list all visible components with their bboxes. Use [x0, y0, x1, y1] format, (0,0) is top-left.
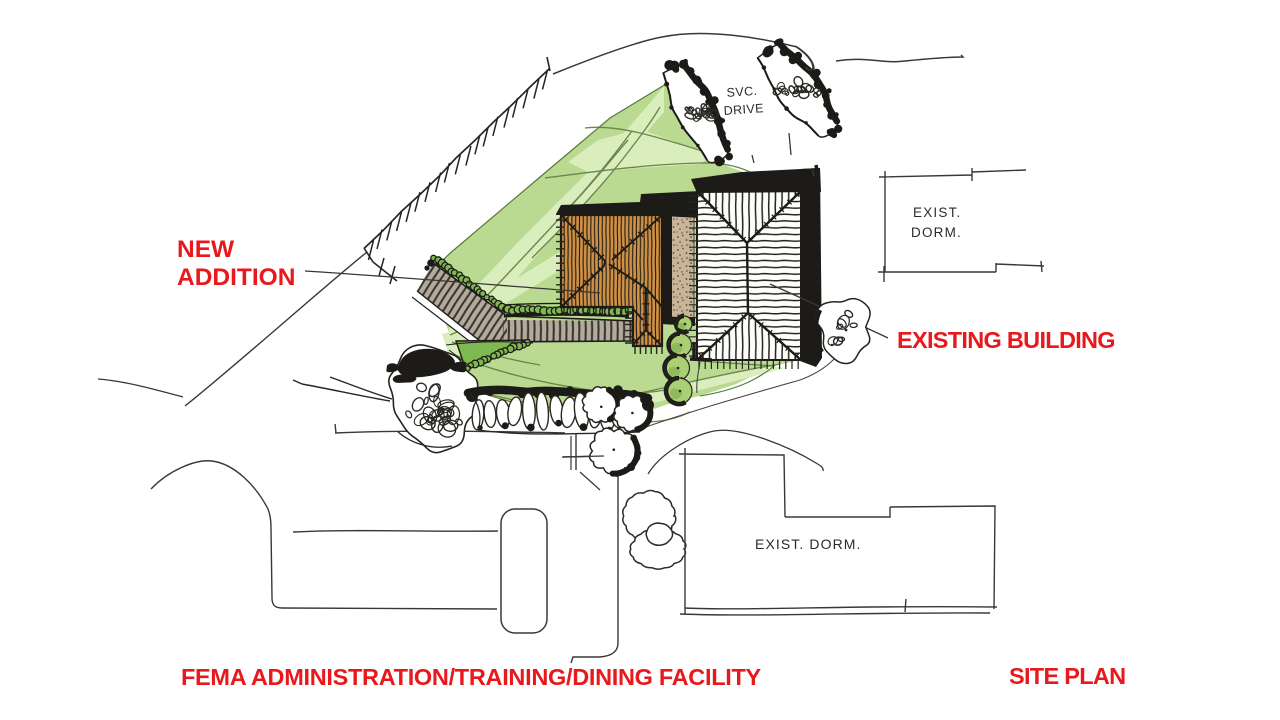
svg-text:EXIST. DORM.: EXIST. DORM.	[755, 536, 862, 552]
svg-text:EXIST.: EXIST.	[913, 205, 961, 220]
svg-text:NEW: NEW	[177, 236, 235, 263]
svg-text:FEMA ADMINISTRATION/TRAINING/D: FEMA ADMINISTRATION/TRAINING/DINING FACI…	[181, 664, 762, 690]
svg-text:SVC.: SVC.	[726, 84, 758, 100]
svg-text:ADDITION: ADDITION	[177, 264, 295, 291]
svg-text:DRIVE: DRIVE	[723, 101, 764, 118]
svg-text:EXISTING BUILDING: EXISTING BUILDING	[897, 327, 1115, 353]
svg-text:SITE PLAN: SITE PLAN	[1009, 663, 1125, 689]
svg-text:DORM.: DORM.	[911, 225, 962, 240]
